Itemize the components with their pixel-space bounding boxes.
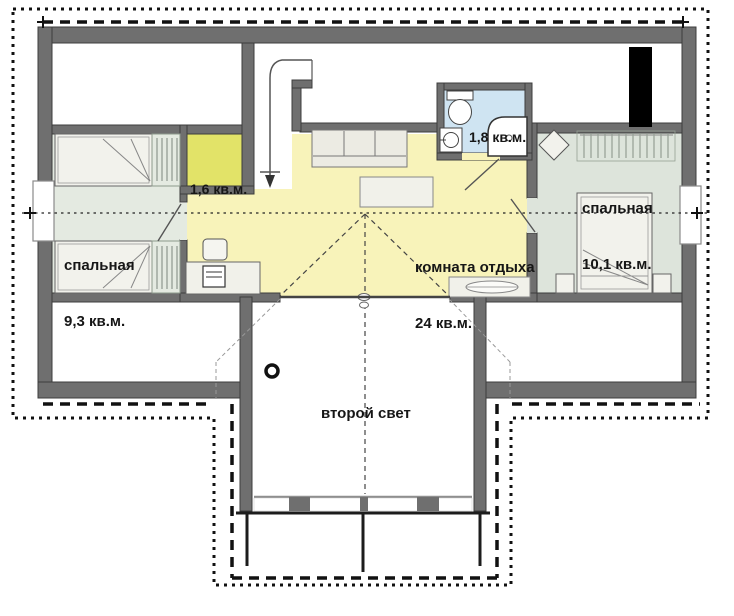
nightstand-icon (556, 274, 574, 293)
closet-label: 1,6 кв.м. (190, 146, 247, 234)
void-wall-left (240, 297, 252, 511)
bathroom-label: 1,8 кв.м. (469, 94, 526, 182)
void-window-mullion-center (360, 497, 368, 511)
column-icon (266, 365, 278, 377)
room-area: 10,1 кв.м. (582, 256, 653, 275)
stair-wall-nib (292, 80, 312, 88)
chair-icon (203, 239, 227, 260)
bathroom-wall-top (437, 83, 532, 90)
nightstand-icon (653, 274, 671, 293)
chimney (629, 47, 652, 127)
section-marker-icon (358, 294, 370, 309)
wall-bottom-left (38, 382, 252, 398)
window-left (33, 181, 54, 241)
room-area: 9,3 кв.м. (64, 313, 135, 332)
printer-icon (203, 266, 225, 287)
wall-bottom-right (474, 382, 696, 398)
room-name: спальная (64, 257, 135, 276)
void-window-wall (236, 497, 490, 572)
sink-icon (440, 128, 462, 152)
porch-posts (247, 514, 480, 572)
coffee-table-icon (360, 177, 433, 207)
room-name: комната отдыха (415, 259, 535, 278)
second-light-label: второй свет (321, 367, 411, 461)
bed-icon (55, 134, 152, 186)
room-name: спальная (582, 200, 653, 219)
floor-plan: спальная 9,3 кв.м. 1,6 кв.м. 1,8 кв.м. к… (0, 0, 734, 616)
void-window-mullion-2 (417, 497, 439, 511)
room-area: 24 кв.м. (415, 315, 535, 334)
void-window-mullion-1 (289, 497, 310, 511)
lounge-label: комната отдыха 24 кв.м. (415, 221, 535, 371)
bedroom-right-label: спальная 10,1 кв.м. (582, 162, 653, 312)
knee-wall-left (52, 125, 242, 134)
room-area: 1,8 кв.м. (469, 129, 526, 147)
bedroom-left-door-opening (180, 203, 187, 240)
wall-top (38, 27, 696, 43)
bedroom-left-label: спальная 9,3 кв.м. (64, 219, 135, 369)
sofa-icon (312, 130, 407, 167)
room-name: второй свет (321, 405, 411, 424)
room-area: 1,6 кв.м. (190, 181, 247, 199)
